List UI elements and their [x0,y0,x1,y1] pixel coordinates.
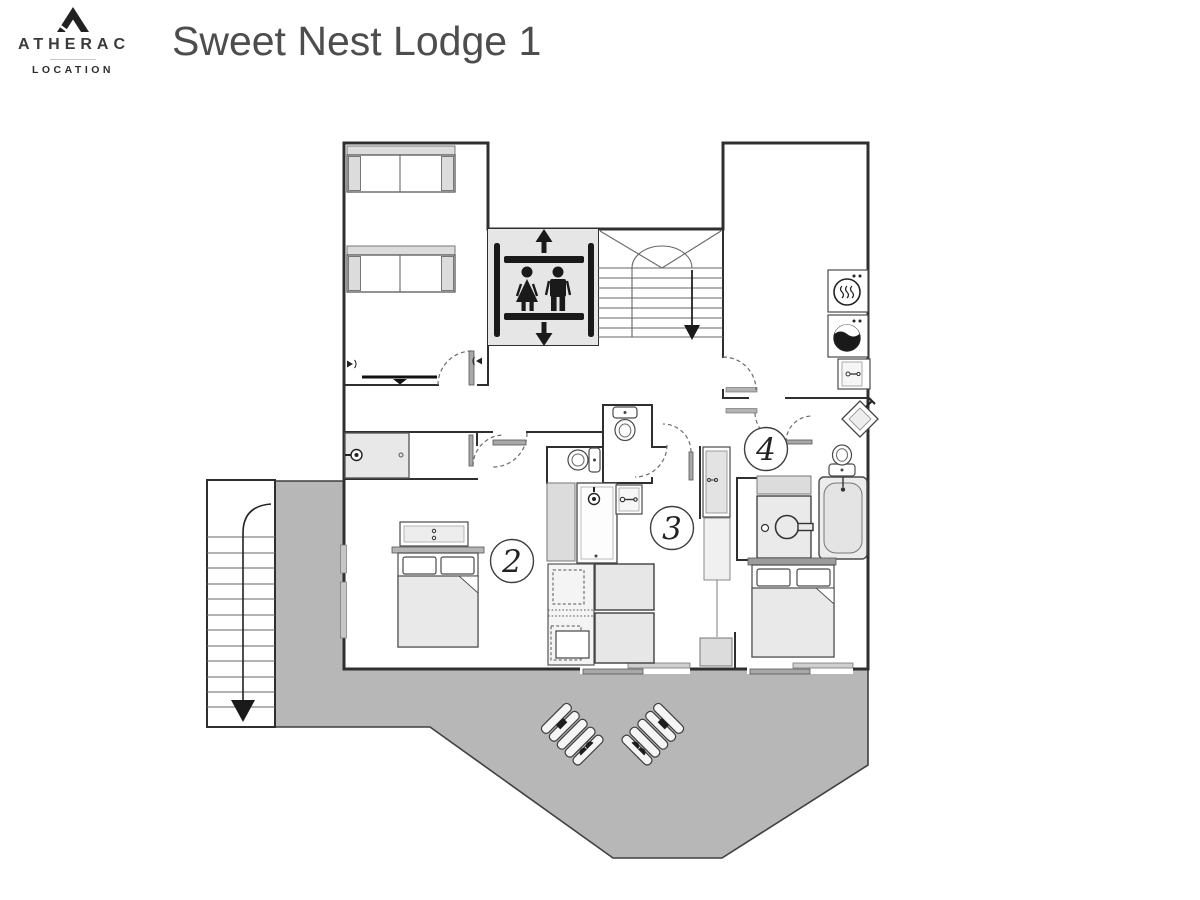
door-leaf [493,440,526,445]
floor-plan: 2 3 4 [0,0,1200,900]
bathroom4 [757,398,878,559]
window-icon [341,582,347,638]
shower-mixer-icon [757,476,813,558]
laundry [828,270,870,389]
exterior-stairs-icon [207,480,275,727]
toilet-icon [613,407,637,441]
toilet-icon [568,448,600,472]
door-leaf [469,435,473,466]
sofa-bed-icon [347,146,455,192]
door-leaf [689,452,693,480]
down-arrow-icon [684,325,700,340]
wardrobe-icon [700,447,732,666]
washing-machine-icon [828,315,868,357]
speaker-icon [347,360,356,368]
shower-tray [345,433,409,478]
floor-plan-page: ATHERAC LOCATION Sweet Nest Lodge 1 [0,0,1200,900]
dryer-icon [828,270,868,312]
room-label-3: 3 [651,507,694,550]
cabinet-icon [838,359,870,389]
double-bed-icon [392,547,484,647]
sink-icon [616,485,642,514]
window-icon [341,545,347,573]
diamond-sink-icon [842,398,878,437]
toilet-icon [829,445,855,476]
room-label-4: 4 [745,428,788,471]
svg-text:3: 3 [662,511,682,547]
tv-icon [362,377,437,385]
bathtub-icon [819,477,867,559]
double-bed-icon [748,558,836,657]
sliding-door-icon [726,388,757,393]
bunk-bed-icon [548,564,654,665]
door-leaf [786,440,812,444]
interior-stairs-icon [598,231,723,340]
sliding-door-icon [726,409,757,414]
room-label-2: 2 [491,540,534,583]
shower-closet [547,483,617,563]
bedroom2-furniture [392,522,484,647]
door-leaf [469,351,474,385]
svg-text:4: 4 [755,432,776,468]
sofa-bed-icon [347,246,455,292]
dresser [400,522,468,546]
svg-text:2: 2 [501,544,522,580]
elevator-icon [488,229,598,346]
